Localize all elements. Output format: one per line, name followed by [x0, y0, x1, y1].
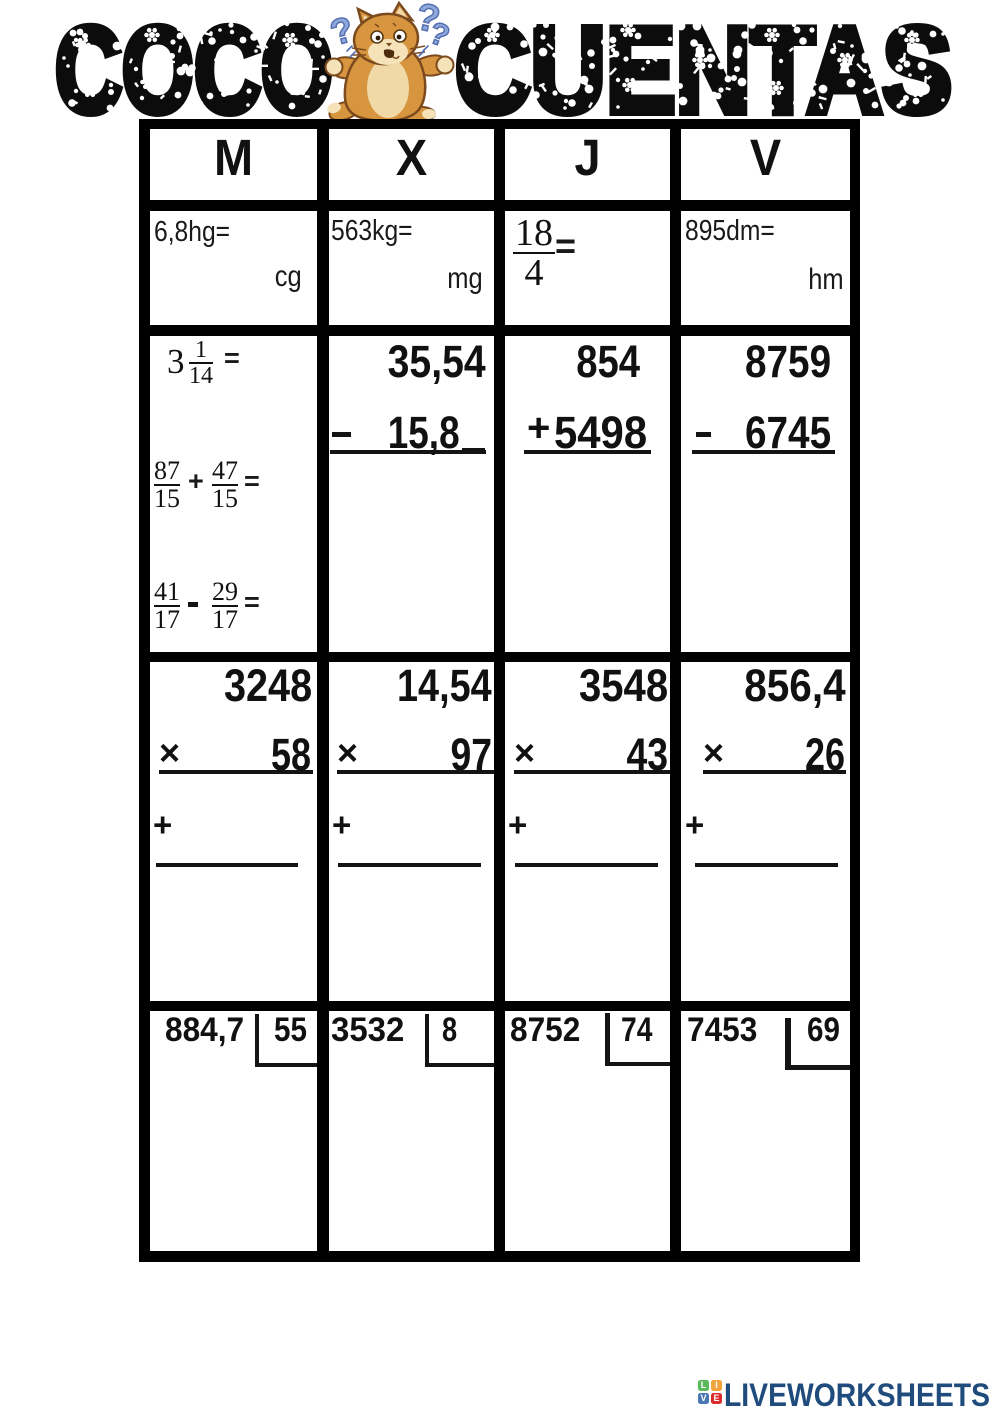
svg-text:LIVEWORKSHEETS: LIVEWORKSHEETS [724, 1380, 990, 1413]
